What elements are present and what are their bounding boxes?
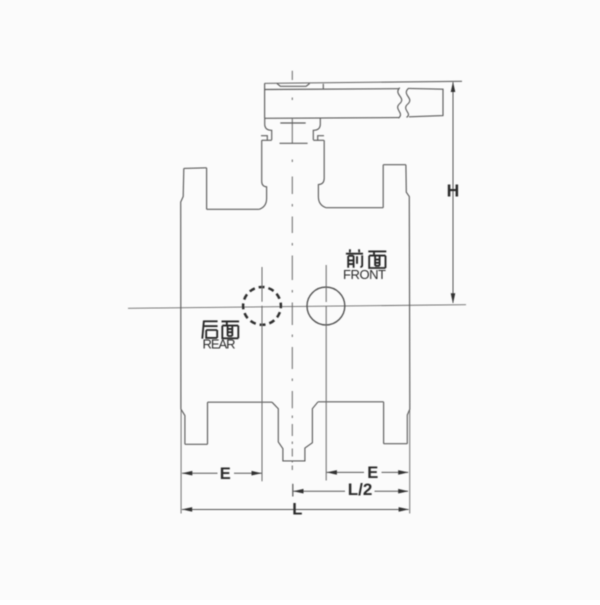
svg-text:H: H — [447, 181, 460, 201]
svg-text:FRONT: FRONT — [343, 267, 386, 282]
svg-text:E: E — [220, 465, 231, 483]
svg-text:L/2: L/2 — [348, 480, 373, 499]
svg-text:L: L — [292, 501, 302, 519]
